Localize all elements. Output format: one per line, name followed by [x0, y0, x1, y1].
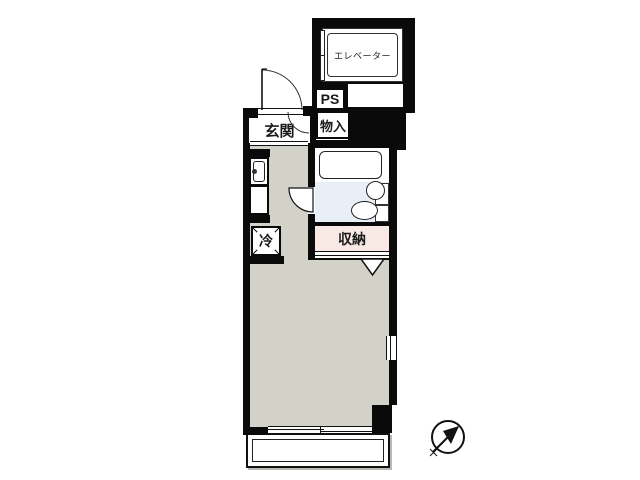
southwest-corner-wall	[243, 427, 268, 435]
entrance-top-wall	[243, 108, 258, 118]
elevator-door-split	[321, 55, 324, 56]
bathtub	[319, 151, 382, 179]
elevator-cab: エレベーター	[327, 33, 398, 77]
side-window-rail	[390, 336, 391, 360]
sliding-window-right-panel	[320, 431, 372, 432]
entrance-door-threshold	[258, 108, 303, 115]
closet-label: 収納	[315, 226, 389, 251]
pipe-space-box: PS	[315, 88, 345, 110]
hall-storage-box: 物入	[316, 111, 350, 139]
elevator-label: エレベーター	[328, 34, 397, 76]
compass-icon	[430, 421, 464, 456]
kitchen-upper-stub-wall	[243, 149, 270, 157]
balcony	[246, 433, 390, 468]
kitchen-lower-stub-wall	[243, 215, 270, 223]
refrigerator-label: 冷	[257, 232, 275, 250]
closet-door-track	[315, 251, 389, 259]
kitchen-sink-unit	[249, 157, 269, 186]
refrigerator-stub-wall	[243, 256, 284, 264]
floorplan: エレベーター PS 玄関 物入 冷 収納	[0, 0, 640, 480]
southeast-corner-wall	[372, 405, 392, 433]
entrance-label: 玄関	[249, 118, 310, 143]
washbasin-icon	[366, 181, 385, 200]
closet-floor: 収納	[315, 226, 389, 251]
east-wall	[389, 255, 397, 405]
sliding-window-left-panel	[268, 429, 324, 430]
balcony-sliding-window	[268, 426, 372, 434]
pipe-space-label: PS	[321, 91, 340, 107]
toilet-icon	[351, 201, 378, 220]
balcony-inner-rail	[252, 439, 384, 462]
sliding-window-center-tick	[320, 427, 321, 433]
hall-storage-label: 物入	[320, 116, 346, 135]
entrance-step-edge	[250, 141, 308, 146]
refrigerator-box: 冷	[251, 226, 281, 256]
kitchen-faucet-icon	[252, 169, 257, 174]
kitchen-counter	[249, 185, 269, 215]
entrance-floor: 玄関	[249, 118, 310, 143]
closet-door-track-midline	[315, 255, 389, 256]
main-room-floor	[250, 258, 389, 428]
side-window	[386, 336, 397, 360]
bathroom-door-opening	[308, 187, 315, 214]
elevator-door	[320, 30, 325, 81]
elevator-lobby-space	[348, 84, 403, 107]
entrance-door-swing	[262, 69, 302, 110]
